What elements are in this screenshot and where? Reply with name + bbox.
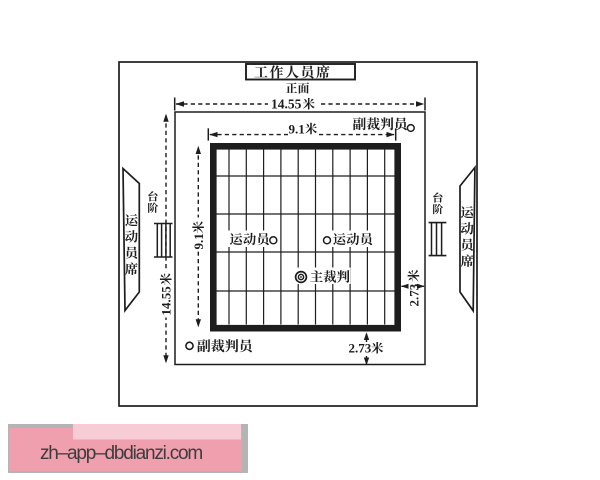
svg-text:2.73: 2.73: [406, 283, 421, 306]
svg-text:14.55: 14.55: [271, 97, 302, 112]
svg-text:9.1: 9.1: [191, 233, 206, 249]
svg-text:9.1: 9.1: [289, 121, 305, 136]
svg-text:zh–app–dbdianzi.com: zh–app–dbdianzi.com: [40, 443, 202, 464]
svg-text:14.55: 14.55: [159, 286, 174, 316]
svg-text:2.73: 2.73: [349, 341, 372, 356]
